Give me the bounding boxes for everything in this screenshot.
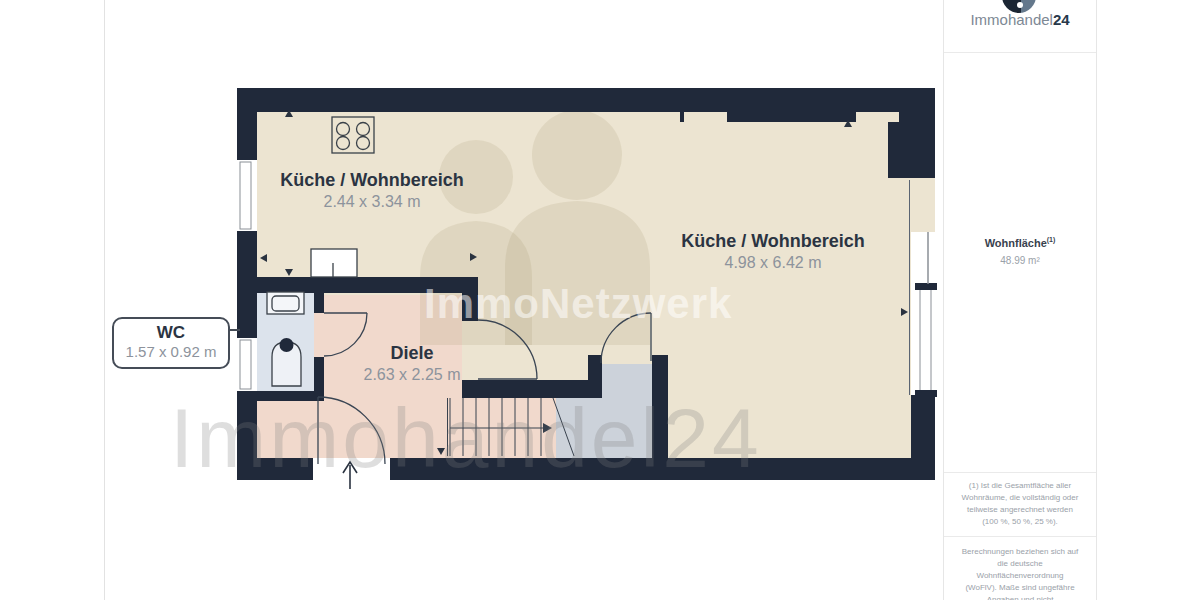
- niche-top-1: [684, 112, 727, 122]
- footnote-area-definition: (1) Ist die Gesamtfläche aller Wohnräume…: [960, 480, 1080, 528]
- window-left-kitchen-frame: [240, 162, 251, 229]
- watermark-bottom-text: Immohandel24: [170, 390, 762, 487]
- wall-wc-right-upper: [314, 293, 324, 313]
- room-name: WC: [114, 323, 228, 343]
- room-label-hallway: Diele 2.63 x 2.25 m: [342, 343, 482, 384]
- watermark-center-text: ImmoNetzwerk: [424, 280, 732, 328]
- wall-right-lower: [911, 395, 935, 465]
- living-area-footnote-ref: (1): [1047, 236, 1056, 243]
- living-area-label-text: Wohnfläche: [985, 237, 1047, 249]
- sidebar-divider: [944, 536, 1096, 537]
- room-name: Küche / Wohnbereich: [663, 231, 883, 252]
- kitchen-sink-icon: [311, 249, 357, 277]
- room-label-wc-callout: WC 1.57 x 0.92 m: [112, 317, 230, 369]
- living-area-label: Wohnfläche(1): [944, 236, 1096, 249]
- window-left-wc-frame: [240, 340, 251, 389]
- brand-name: Immohandel: [970, 11, 1053, 28]
- room-name: Küche / Wohnbereich: [262, 170, 482, 191]
- wall-top: [237, 88, 935, 112]
- footnote-disclaimer: Berechnungen beziehen sich auf die deuts…: [960, 546, 1080, 600]
- wall-wc-right-lower: [314, 357, 324, 391]
- wall-recess-fill: [911, 178, 935, 232]
- room-label-kitchen-small: Küche / Wohnbereich 2.44 x 3.34 m: [262, 170, 482, 211]
- window-right: [915, 283, 937, 397]
- info-sidebar: Immohandel24 Wohnfläche(1) 48.99 m² (1) …: [943, 0, 1097, 600]
- living-area-value: 48.99 m²: [944, 255, 1096, 266]
- sidebar-divider: [944, 52, 1096, 53]
- brand-suffix: 24: [1053, 11, 1070, 28]
- window-right-cap-top: [915, 283, 937, 290]
- room-dims: 2.63 x 2.25 m: [342, 366, 482, 384]
- wall-left-upper: [237, 112, 257, 160]
- brand-logo-dot: [1017, 2, 1023, 8]
- room-dims: 4.98 x 6.42 m: [663, 254, 883, 272]
- room-name: Diele: [342, 343, 482, 364]
- toilet-cistern: [280, 338, 294, 352]
- room-label-kitchen-large: Küche / Wohnbereich 4.98 x 6.42 m: [663, 231, 883, 272]
- room-dims: 1.57 x 0.92 m: [114, 343, 228, 360]
- brand-logo-text: Immohandel24: [944, 11, 1096, 28]
- niche-top-2: [856, 112, 899, 122]
- window-right-cap-bottom: [915, 390, 937, 397]
- sidebar-divider: [944, 472, 1096, 473]
- floorplan-page: Immohandel24 ImmoNetzwerk Küche / Wohnbe…: [0, 0, 1200, 600]
- silhouette-large-head: [532, 110, 622, 200]
- room-dims: 2.44 x 3.34 m: [262, 193, 482, 211]
